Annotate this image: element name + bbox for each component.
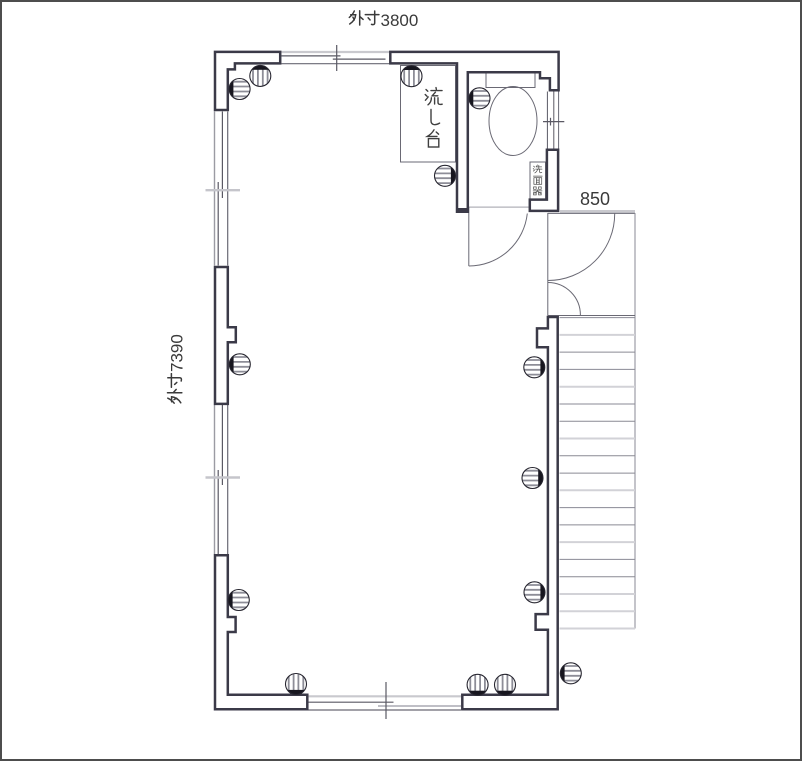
svg-text:850: 850 — [580, 189, 610, 209]
svg-text:7390: 7390 — [168, 334, 187, 372]
svg-text:3800: 3800 — [381, 11, 419, 30]
